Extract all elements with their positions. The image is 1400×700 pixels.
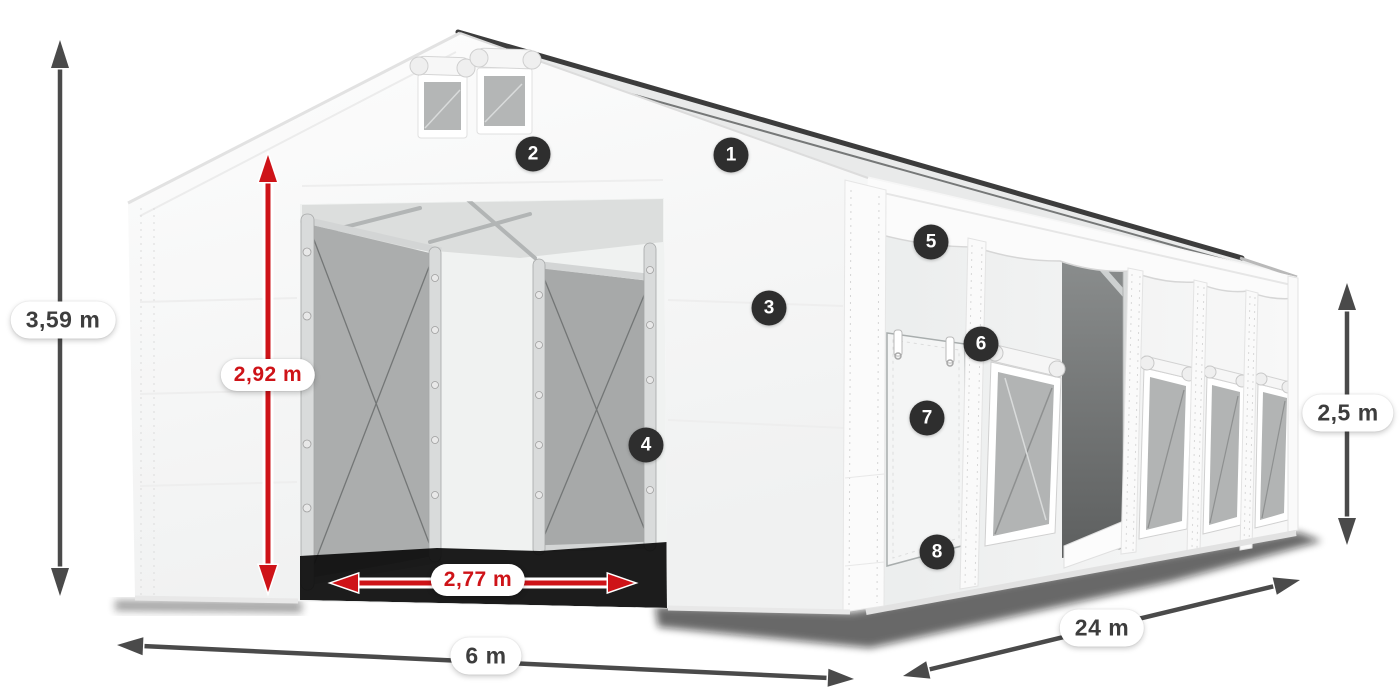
- dimension-side-height: 2,5 m: [1302, 395, 1393, 432]
- dimension-front-width: 6 m: [450, 638, 521, 675]
- side-door-panel: [887, 330, 965, 566]
- tent-illustration: [0, 0, 1400, 700]
- side-window-near: [985, 344, 1065, 546]
- gable-window-left: [410, 56, 475, 138]
- callout-badge-2[interactable]: 2: [516, 137, 551, 172]
- front-entrance-interior: [298, 196, 670, 612]
- callout-badge-5[interactable]: 5: [914, 225, 949, 260]
- callout-badge-4[interactable]: 4: [629, 428, 664, 463]
- callout-badge-8[interactable]: 8: [920, 535, 955, 570]
- entrance-left-door: [301, 214, 441, 590]
- front-right-corner-strap: [843, 180, 886, 612]
- dimension-side-length: 24 m: [1060, 610, 1144, 647]
- entrance-right-door: [533, 243, 656, 555]
- dimension-entrance-width: 2,77 m: [431, 564, 525, 596]
- product-diagram: 3,59 m 2,92 m 2,77 m 6 m 24 m 2,5 m 1 2 …: [0, 0, 1400, 700]
- callout-badge-7[interactable]: 7: [910, 401, 945, 436]
- dimension-entrance-height: 2,92 m: [221, 359, 315, 391]
- gable-window-right: [470, 48, 541, 134]
- callout-badge-1[interactable]: 1: [714, 138, 749, 173]
- dimension-total-height: 3,59 m: [11, 302, 116, 339]
- side-window-1: [1139, 356, 1196, 539]
- callout-badge-3[interactable]: 3: [752, 291, 787, 326]
- callout-badge-6[interactable]: 6: [964, 327, 999, 362]
